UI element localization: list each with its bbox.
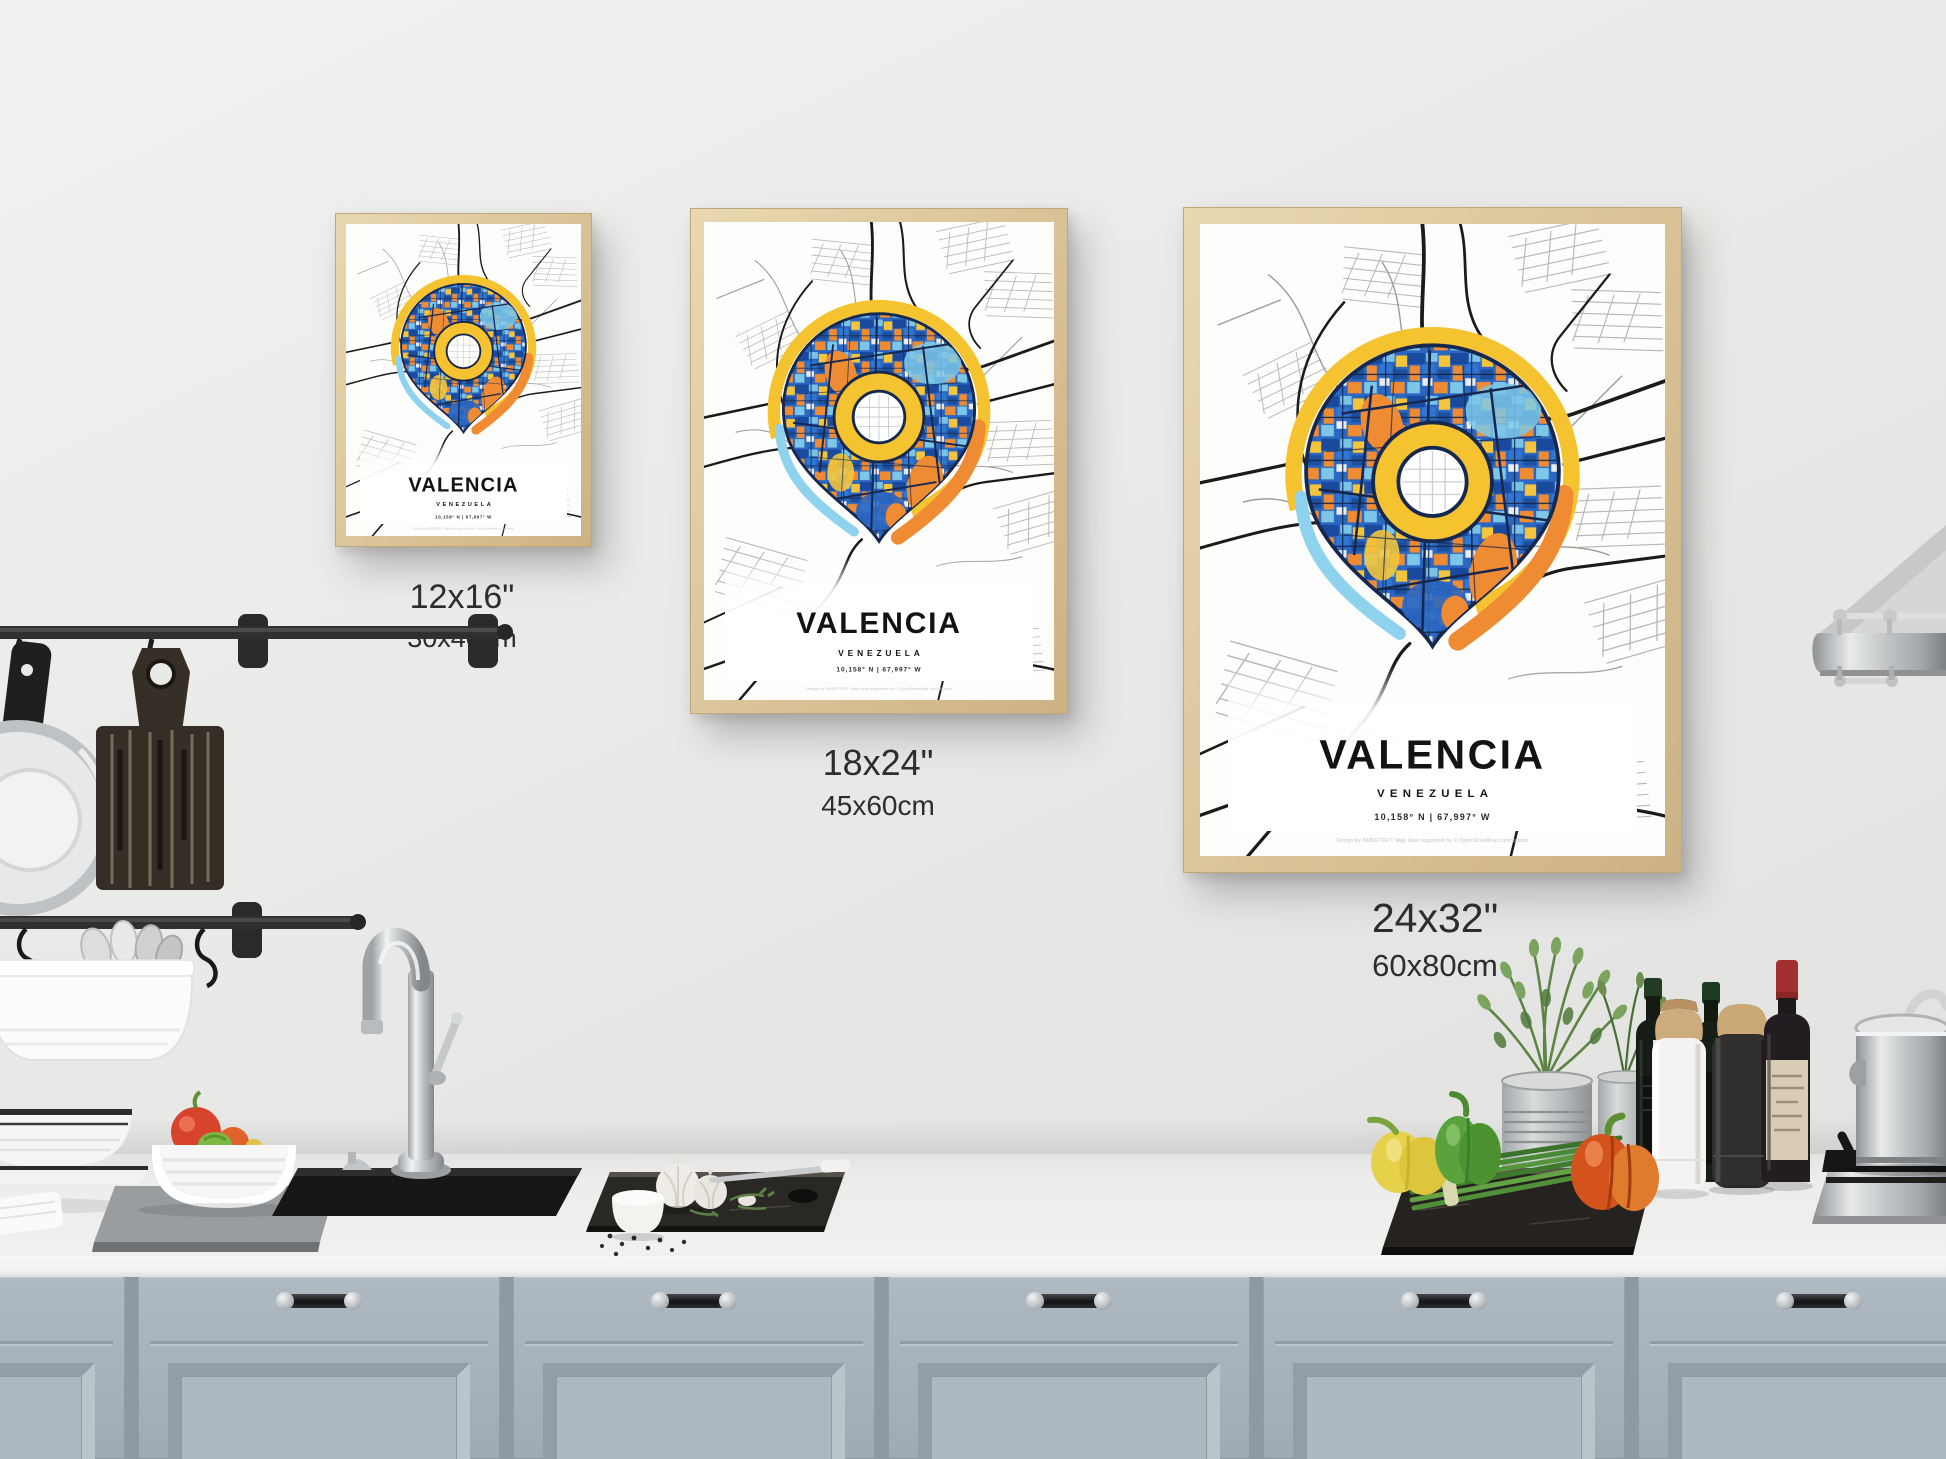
sink-and-prep-area [260,900,900,1270]
wall-rail-top [0,614,513,668]
range-hood [1812,525,1946,687]
poster-credit: Design by HEBSTREIT. Map data supported … [806,687,952,691]
poster-title: VALENCIA [408,475,518,498]
dish-cloth [0,1191,64,1237]
poster-coordinates: 10,158° N | 67,997° W [836,667,921,674]
size-inches: 18x24" [748,742,1008,784]
handle-bolt [276,1292,294,1310]
handle-bolt [1844,1292,1862,1310]
green-bell-pepper [1435,1094,1501,1185]
utensil-bin [0,920,194,1060]
cabinet-handle [1776,1290,1862,1312]
handle-bolt [1469,1292,1487,1310]
drawer-groove [1275,1341,1613,1344]
size-label-medium: 18x24" 45x60cm [748,742,1008,822]
handle-bolt [1026,1292,1044,1310]
door-panel [1293,1363,1595,1459]
poster-art-18x24: VALENCIA VENEZUELA 10,158° N | 67,997° W… [704,222,1054,700]
door-panel [0,1363,95,1459]
handle-bar [1410,1294,1478,1308]
cabinet-handle [1401,1290,1487,1312]
handle-bar [660,1294,728,1308]
faucet [342,937,463,1179]
poster-title: VALENCIA [796,607,962,641]
drawer-groove [900,1341,1238,1344]
s-hook [197,929,215,986]
handle-bolt [1776,1292,1794,1310]
cabinet-door [1263,1277,1625,1459]
hanging-cutting-board [96,648,224,890]
cabinet-door [138,1277,500,1459]
handle-bar [1785,1294,1853,1308]
handle-bolt [344,1292,362,1310]
handle-bolt [651,1292,669,1310]
poster-art-12x16: VALENCIA VENEZUELA 10,158° N | 67,997° W… [346,224,581,536]
stock-pot [1849,994,1946,1176]
handle-bar [285,1294,353,1308]
cabinet-door [888,1277,1250,1459]
cabinet-door [513,1277,875,1459]
small-white-bowl [612,1190,664,1241]
faucet-lever [436,1022,456,1072]
hanging-pan [0,640,110,910]
handle-bar [1035,1294,1103,1308]
cabinet-handle [276,1290,362,1312]
kitchen-scene: VALENCIA VENEZUELA 10,158° N | 67,997° W… [0,0,1946,1459]
cabinet-door [1638,1277,1946,1459]
base-cabinets [0,1277,1946,1459]
cabinet-handle [1026,1290,1112,1312]
drawer-groove [150,1341,488,1344]
handle-bolt [1094,1292,1112,1310]
poster-coordinates: 10,158° N | 67,997° W [435,514,492,519]
poster-subtitle: VENEZUELA [434,502,494,508]
poster-credit: Design by HEBSTREIT. Map data supported … [414,527,514,530]
door-panel [1668,1363,1946,1459]
drawer-groove [1650,1341,1946,1344]
poster-frame-18x24: VALENCIA VENEZUELA 10,158° N | 67,997° W… [690,208,1068,714]
soap-dispenser [342,1152,372,1170]
drawer-groove [0,1341,113,1344]
door-panel [543,1363,845,1459]
cabinet-handle [651,1290,737,1312]
handle-bolt [719,1292,737,1310]
cabinet-door [0,1277,125,1459]
drawer-groove [525,1341,863,1344]
poster-frame-12x16: VALENCIA VENEZUELA 10,158° N | 67,997° W… [335,213,592,547]
pot-handle [1849,1060,1866,1086]
poster-subtitle: VENEZUELA [834,648,923,658]
right-props [1350,520,1946,1270]
door-panel [918,1363,1220,1459]
wine-bottle [1761,960,1813,1191]
size-centimeters: 45x60cm [748,790,1008,822]
door-panel [168,1363,470,1459]
handle-bolt [1401,1292,1419,1310]
